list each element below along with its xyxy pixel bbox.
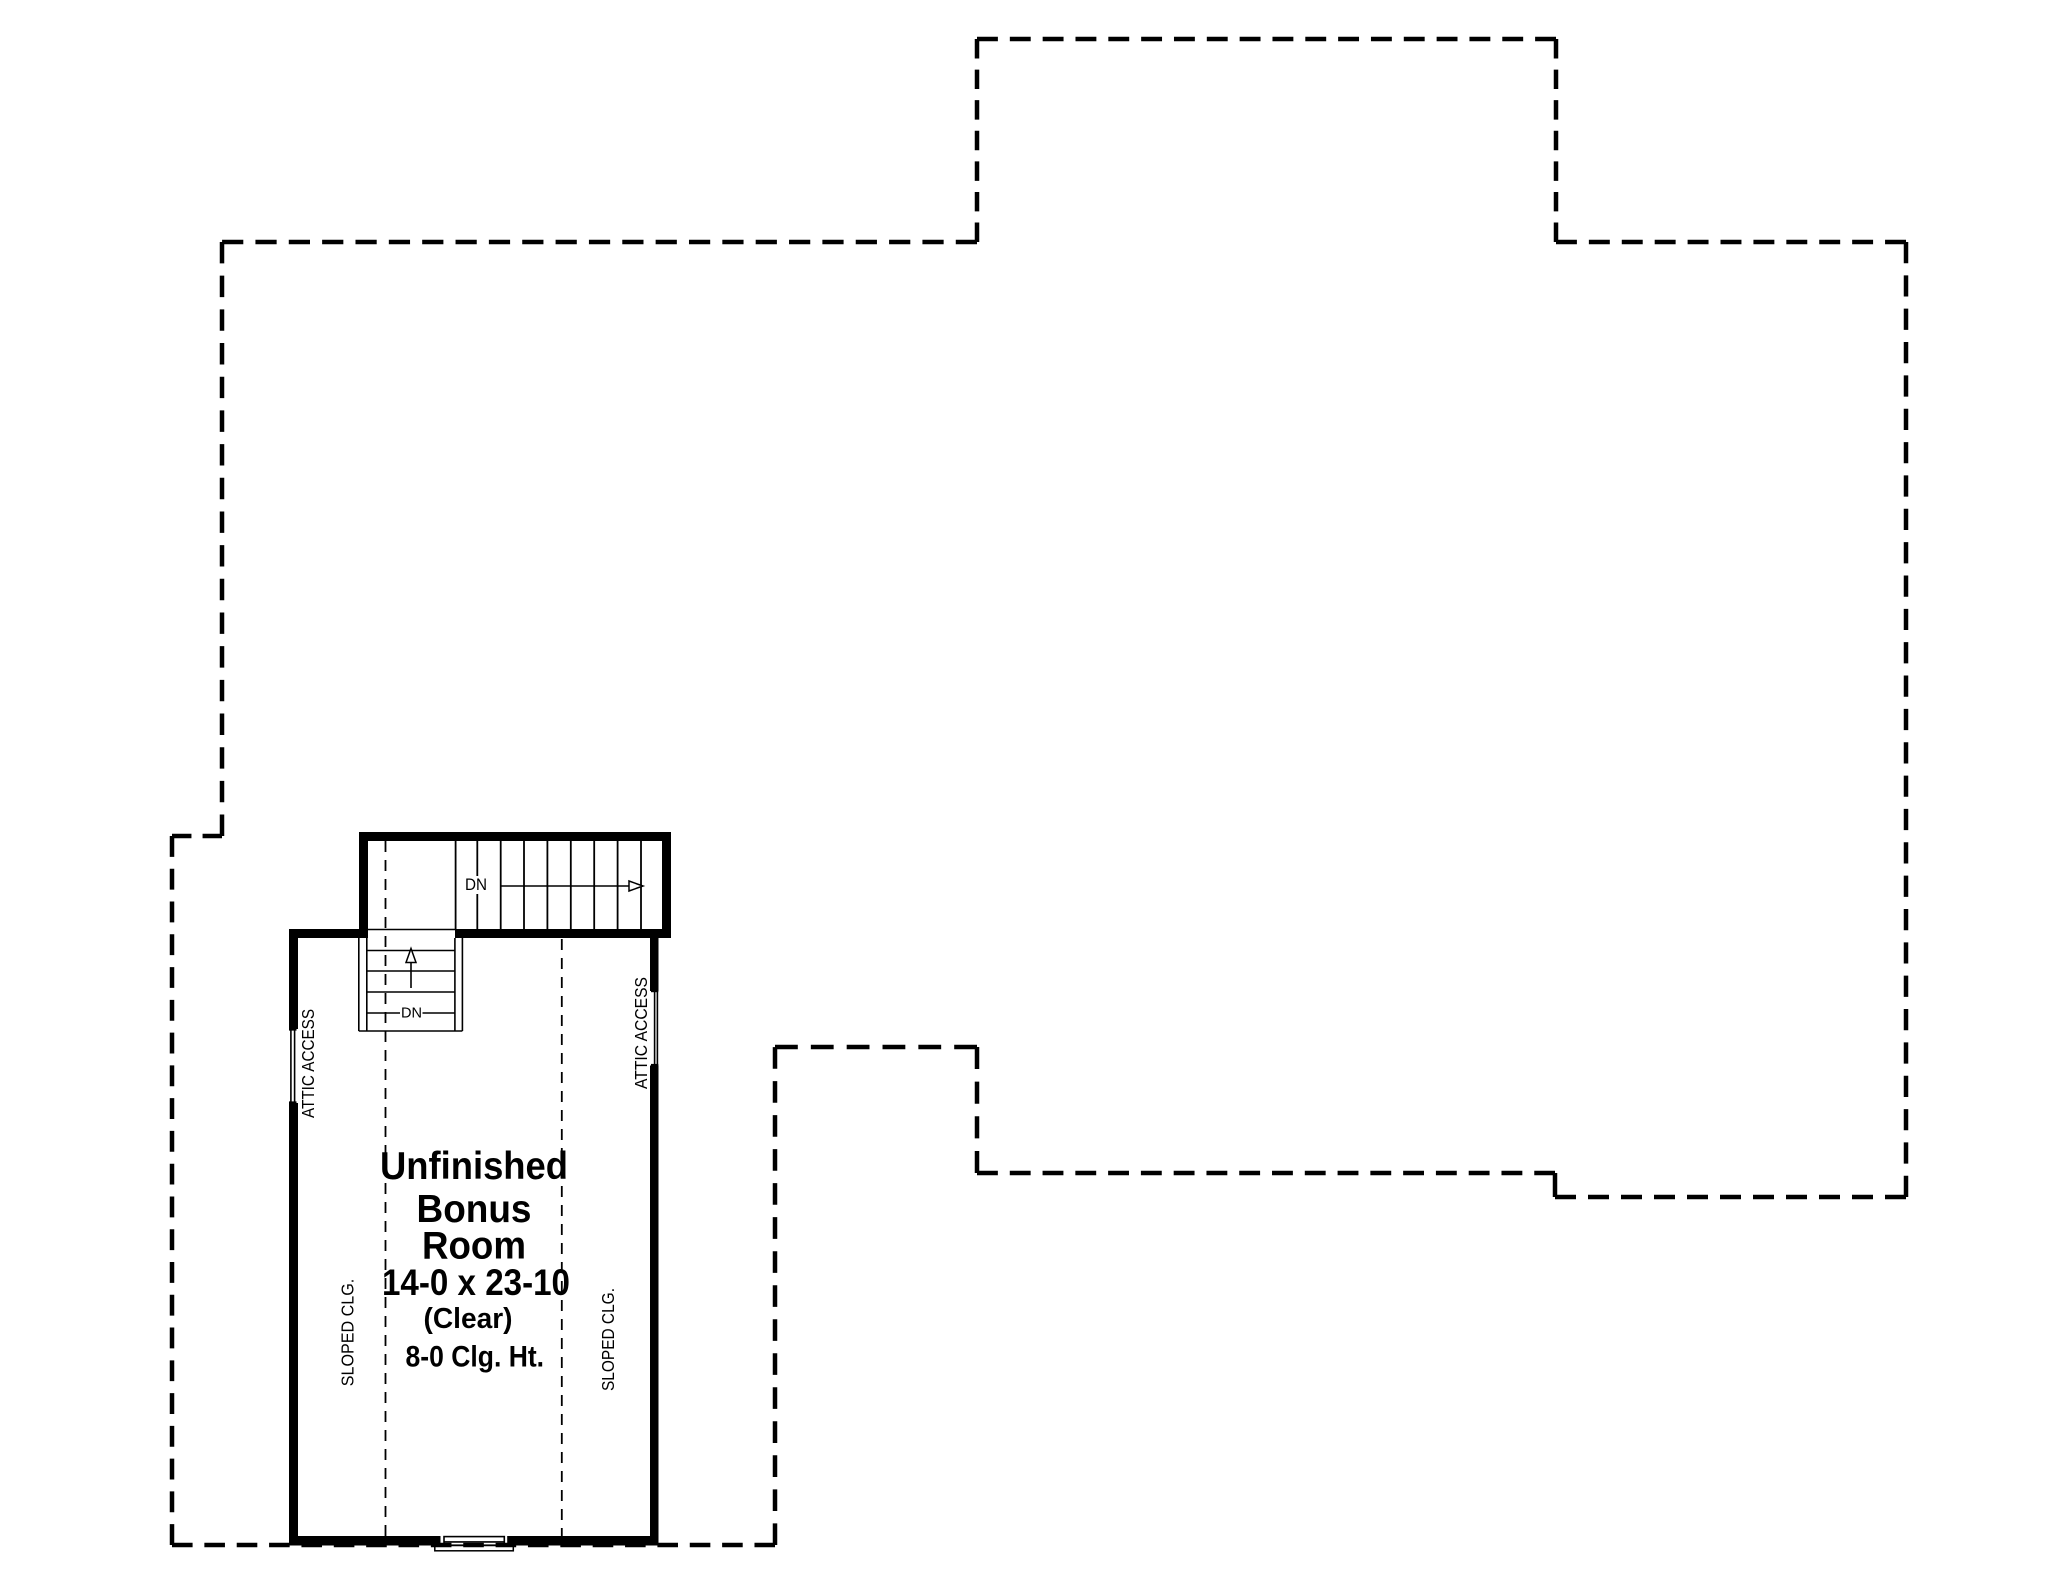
svg-text:8-0 Clg. Ht.: 8-0 Clg. Ht.	[406, 1341, 545, 1374]
svg-text:SLOPED CLG.: SLOPED CLG.	[598, 1288, 618, 1391]
svg-text:Unfinished: Unfinished	[380, 1145, 568, 1188]
svg-text:DN: DN	[465, 876, 487, 894]
svg-text:ATTIC ACCESS: ATTIC ACCESS	[298, 1009, 318, 1118]
svg-text:SLOPED CLG.: SLOPED CLG.	[338, 1279, 358, 1387]
svg-text:DN: DN	[401, 1005, 422, 1022]
svg-text:(Clear): (Clear)	[424, 1303, 513, 1335]
svg-text:ATTIC ACCESS: ATTIC ACCESS	[631, 977, 651, 1089]
svg-text:14-0 x 23-10: 14-0 x 23-10	[382, 1262, 570, 1303]
